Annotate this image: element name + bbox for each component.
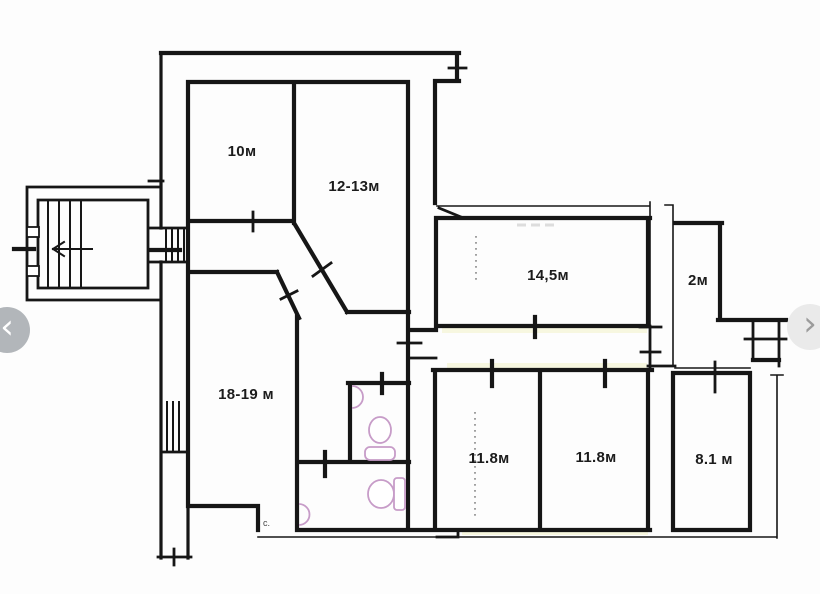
floorplan-image: 10м 12-13м 14,5м 2м 18-19 м 11.8м 11.8м … [0,0,820,594]
toilet-tank-icon [394,478,405,510]
outer-left-wall [161,53,188,558]
room-label-8-1m: 8.1 м [695,451,733,468]
stair-direction-arrow-icon [53,242,92,256]
corridor-tint [442,328,648,535]
stair-treads [48,200,184,452]
sink-icon [352,386,363,408]
room-label-10m: 10м [228,143,257,160]
chevron-right-icon: › [803,307,817,341]
sink-icon [299,504,310,525]
toilet-icon [368,480,394,508]
toilet-icon [369,417,391,443]
room-label-11-8m-b: 11.8м [576,449,617,466]
toilet-base-icon [365,447,395,460]
room-label-2m: 2м [688,272,708,289]
thick-walls [14,53,786,530]
room-label-14-5m: 14,5м [527,267,569,284]
floorplan-viewer: 10м 12-13м 14,5м 2м 18-19 м 11.8м 11.8м … [0,0,820,594]
room-label-12-13m: 12-13м [328,178,379,195]
room-label-11-8m-a: 11.8м [469,450,510,467]
room-label-18-19m: 18-19 м [218,386,274,403]
radiator-dashed-lines [475,236,476,518]
staircase [48,200,184,452]
chevron-left-icon: ‹ [0,310,14,344]
entry-mark: c. [263,518,270,528]
